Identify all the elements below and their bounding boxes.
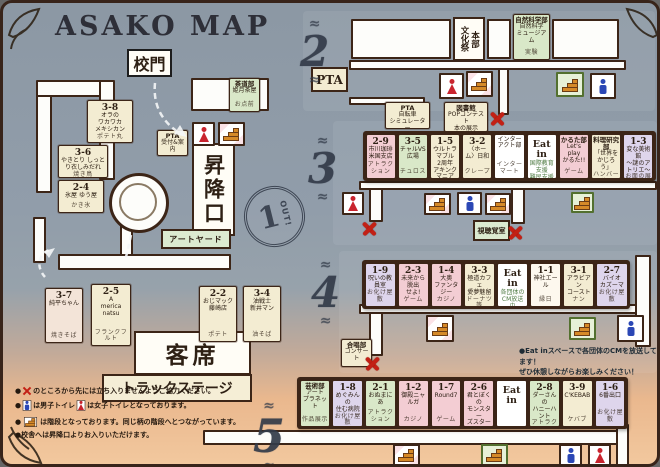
- stall-1-4: 1-4大奥ファンタジーカジノ: [431, 263, 462, 307]
- stall-1-3: 1-3変な美術館〜謎のアトリエ〜お面の展示: [623, 134, 653, 179]
- eat-in-note-line2: ぜひ休憩しながらお楽しみください！: [519, 367, 660, 378]
- male-glyph: [566, 448, 576, 463]
- stall-1-1: 1-1神社エール縁日: [530, 263, 561, 307]
- stairs-glyph: [398, 448, 415, 462]
- female-glyph: [447, 79, 457, 94]
- festival-hq-text2: 本部: [470, 31, 479, 48]
- corridor: [511, 188, 525, 224]
- female-restroom-icon: [192, 122, 215, 146]
- entrance-corridor: [191, 78, 269, 111]
- stall-3-9: 3-9C'KEBABケバブ: [562, 380, 593, 427]
- school-gate-label: 校門: [127, 49, 172, 77]
- x-mark-icon: [365, 356, 380, 371]
- eat-in: Eat in各団体のCM放送中: [497, 263, 528, 307]
- eat-in-note-line1: ●Eat inスペースで各団体のCMを放送してます！: [519, 346, 660, 367]
- eat-in: Eat in国際教育支援難民支援: [527, 134, 557, 179]
- stairs-icon-green: [556, 72, 584, 97]
- female-restroom-icon: [342, 192, 364, 215]
- entrance-label: 昇降口: [192, 143, 235, 236]
- stall-1-8: 1-8めぐみんの住む病院お化け屋敷: [332, 380, 363, 427]
- stairs-icon-green: [571, 192, 594, 213]
- legend: ●のところから先には立ち入りませんようご協力ください。 ●は男子トイレは女子トイ…: [15, 386, 267, 441]
- floor3-stamp: 3: [308, 134, 337, 204]
- female-restroom-icon: [439, 73, 464, 99]
- stall-1-6: 1-66番出口お化け屋敷: [595, 380, 626, 427]
- stairs-icon: [485, 193, 511, 215]
- seating-label: 客席: [134, 331, 251, 375]
- stall-1-5: 1-5ウルトラマブル2周年アキンクマニアアトラクション: [430, 134, 460, 179]
- female-glyph: [348, 196, 358, 211]
- floor4-stamp: 4: [311, 258, 340, 328]
- legend-line-restricted: ●のところから先には立ち入りませんようご協力ください。: [15, 386, 267, 397]
- legend-text: は女子トイレとなっております。: [87, 402, 191, 410]
- stairs-glyph: [574, 322, 591, 336]
- corridor: [616, 424, 629, 466]
- cooking-club: 料理研究部「世界をかじろう」ハンバーガー: [591, 134, 621, 179]
- stairs-icon: [466, 71, 493, 97]
- wall: [33, 217, 46, 263]
- stairs-icon: [426, 315, 454, 342]
- stall-2-5: 2-5Americanatsuフランクフルト: [91, 284, 131, 346]
- male-glyph: [626, 321, 636, 336]
- floor2-stamp: 2: [300, 17, 329, 87]
- male-restroom-icon: [457, 192, 482, 215]
- leaf-decoration: [5, 5, 51, 51]
- legend-text: は階段となっております。同じ柄の階段へとつながっています。: [40, 418, 240, 426]
- wall: [58, 254, 231, 270]
- stall-1-2: 1-2御殿ニャルガカジノ: [398, 380, 429, 427]
- male-restroom-icon: [617, 315, 644, 342]
- legend-text: のところから先には立ち入りませんようご協力ください。: [33, 387, 215, 395]
- stairs-glyph: [432, 322, 449, 336]
- stall-1-7: 1-7Round7ゲーム: [431, 380, 462, 427]
- karuta-club: かるた部Let's playかるた!!ゲーム: [559, 134, 589, 179]
- pta-reception: PTA受付&案内: [157, 130, 188, 156]
- female-restroom-icon: [77, 400, 86, 411]
- stall-2-3: 2-3未来から脱出せよ!ゲーム: [398, 263, 429, 307]
- legend-text: は男子トイレ: [33, 402, 75, 410]
- stall-3-5: 3-5チャルVS広場チュロス: [398, 134, 428, 179]
- stall-2-9: 2-9市川珈琲米国支店アトラクション: [366, 134, 396, 179]
- x-mark-icon: [508, 225, 523, 240]
- stall-2-4: 2-4氷屋 ゆう屋かき氷: [58, 180, 104, 213]
- corridor: [359, 181, 657, 190]
- female-glyph: [199, 127, 209, 142]
- stairs-icon: [393, 444, 420, 466]
- wall: [36, 95, 52, 193]
- wall: [99, 80, 115, 180]
- corridor: [349, 97, 425, 105]
- stairs-glyph: [574, 196, 591, 210]
- art-club: 芸術部アートプラネット作品展示: [300, 380, 331, 427]
- corridor: [487, 19, 511, 59]
- stairs-icon: [424, 193, 451, 215]
- stall-3-7: 3-7純平ちゃん焼きそば: [45, 288, 83, 343]
- corridor: [351, 19, 451, 59]
- stairs-icon-green: [569, 317, 596, 340]
- male-glyph: [465, 196, 475, 211]
- stall-2-8: 2-8ダーさんのハニーハントアトラクション: [529, 380, 560, 427]
- legend-text: ●校舎へは昇降口よりお入りいただけます。: [15, 431, 153, 439]
- stairs-glyph: [471, 77, 488, 91]
- art-yard-label: アートヤード: [161, 229, 231, 249]
- stairs-glyph: [486, 448, 503, 462]
- corridor: [369, 188, 383, 222]
- festival-hq-label: 文化祭 本部: [453, 17, 485, 61]
- female-restroom-icon: [588, 444, 611, 466]
- floor3-stall-row: 2-9市川珈琲米国支店アトラクション3-5チャルVS広場チュロス1-5ウルトラマ…: [363, 131, 656, 181]
- x-mark-icon: [490, 111, 505, 126]
- corridor: [498, 68, 509, 115]
- interact-club: インターアクト部インターマート: [494, 134, 524, 179]
- map-title: ASAKO MAP: [55, 11, 270, 42]
- eat-in: Eat in: [496, 380, 527, 427]
- stairs-glyph: [490, 197, 507, 211]
- legend-line-toilets: ●は男子トイレは女子トイレとなっております。: [15, 397, 267, 414]
- stall-3-2: 3-2〈ホーム〉日和クレープ: [462, 134, 492, 179]
- stall-3-3: 3-3極道カフェ愛夢魅留ドーナツ等: [464, 263, 495, 307]
- eat-in-note: ●Eat inスペースで各団体のCMを放送してます！ ぜひ休憩しながらお楽しみく…: [519, 346, 660, 378]
- corridor: [552, 19, 619, 59]
- floor4-stall-row: 1-9呪いの教員室お化け屋敷2-3未来から脱出せよ!ゲーム1-4大奥ファンタジー…: [362, 260, 630, 309]
- leaf-decoration: [619, 5, 660, 51]
- floor1-out-stamp: 1 OUT!: [238, 180, 312, 254]
- male-restroom-icon: [23, 400, 32, 411]
- stall-3-1: 3-1アラビアンコーストナン: [563, 263, 594, 307]
- corridor: [349, 60, 626, 70]
- stairs-glyph: [429, 197, 446, 211]
- male-glyph: [598, 79, 608, 94]
- stall-2-1: 2-1おぬまにあアトラクション: [365, 380, 396, 427]
- stall-1-9: 1-9呪いの教員室お化け屋敷: [365, 263, 396, 307]
- festival-map: ASAKO MAP 校門 昇降口 客席 トラックステージ アートヤード 視聴覚室…: [0, 0, 660, 467]
- stairs-glyph: [562, 78, 579, 92]
- festival-hq-text1: 文化祭: [460, 26, 469, 52]
- x-mark-icon: [22, 387, 32, 396]
- stall-2-6: 2-6君とぼくのモンスターズスター屋アトラクション: [463, 380, 494, 427]
- male-restroom-icon: [590, 73, 616, 99]
- x-mark-icon: [362, 221, 377, 236]
- male-restroom-icon: [559, 444, 582, 466]
- corridor: [369, 312, 383, 356]
- stairs-icon: [218, 122, 245, 146]
- legend-line-stairs: ●は階段となっております。同じ柄の階段へとつながっています。: [15, 414, 267, 430]
- av-room-label: 視聴覚室: [473, 220, 510, 241]
- tree-planter: [109, 173, 169, 233]
- stairs-icon-green: [481, 444, 508, 466]
- floor5-stall-row: 芸術部アートプラネット作品展示1-8めぐみんの住む病院お化け屋敷2-1おぬまにあ…: [297, 377, 628, 429]
- legend-line-entrance: ●校舎へは昇降口よりお入りいただけます。: [15, 430, 267, 441]
- stairs-glyph: [223, 127, 240, 141]
- female-glyph: [595, 448, 605, 463]
- stall-2-7: 2-7バイオカズーマお化け屋敷: [596, 263, 627, 307]
- stairs-icon: [24, 417, 37, 427]
